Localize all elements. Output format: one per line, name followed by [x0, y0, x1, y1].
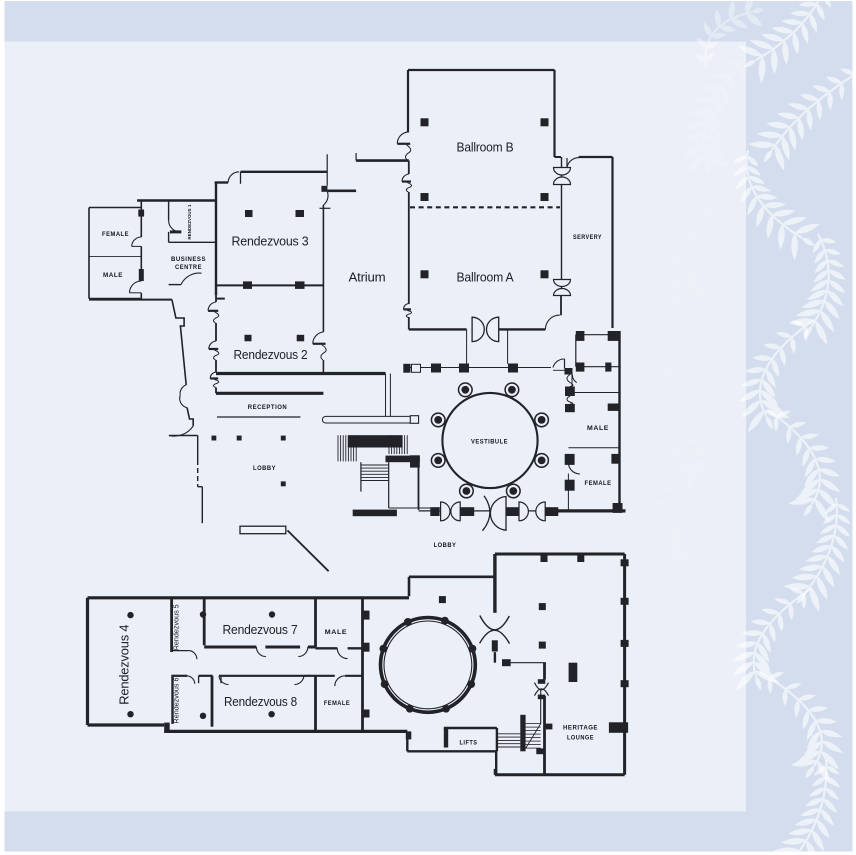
svg-text:FEMALE: FEMALE [102, 231, 129, 238]
svg-text:Rendezvous 8: Rendezvous 8 [224, 694, 297, 709]
svg-text:LOBBY: LOBBY [434, 542, 457, 549]
svg-text:Ballroom A: Ballroom A [457, 270, 514, 285]
svg-text:SERVERY: SERVERY [573, 234, 602, 241]
svg-text:Ballroom B: Ballroom B [457, 140, 514, 155]
svg-text:LIFTS: LIFTS [460, 740, 478, 747]
svg-text:MALE: MALE [587, 425, 609, 432]
svg-text:Atrium: Atrium [349, 270, 386, 285]
svg-text:Rendezvous 7: Rendezvous 7 [223, 622, 298, 637]
svg-text:CENTRE: CENTRE [175, 264, 202, 271]
svg-text:LOBBY: LOBBY [253, 465, 276, 472]
svg-text:BUSINESS: BUSINESS [171, 256, 206, 263]
svg-text:FEMALE: FEMALE [324, 700, 350, 707]
svg-text:Rendezvous 4: Rendezvous 4 [117, 625, 132, 705]
svg-text:Rendezvous 3: Rendezvous 3 [232, 234, 309, 249]
svg-text:VESTIBULE: VESTIBULE [471, 439, 508, 446]
svg-text:FEMALE: FEMALE [585, 480, 612, 487]
svg-text:Rendezvous 5: Rendezvous 5 [172, 604, 181, 650]
svg-text:HERITAGE: HERITAGE [563, 725, 598, 732]
svg-text:RENDEZVOUS 1: RENDEZVOUS 1 [187, 204, 192, 240]
svg-text:RECEPTION: RECEPTION [248, 404, 288, 411]
svg-text:Rendezvous 6: Rendezvous 6 [172, 678, 181, 724]
svg-text:LOUNGE: LOUNGE [567, 735, 594, 742]
svg-text:Rendezvous 2: Rendezvous 2 [234, 347, 308, 362]
svg-text:MALE: MALE [103, 272, 123, 279]
svg-text:MALE: MALE [325, 629, 348, 636]
